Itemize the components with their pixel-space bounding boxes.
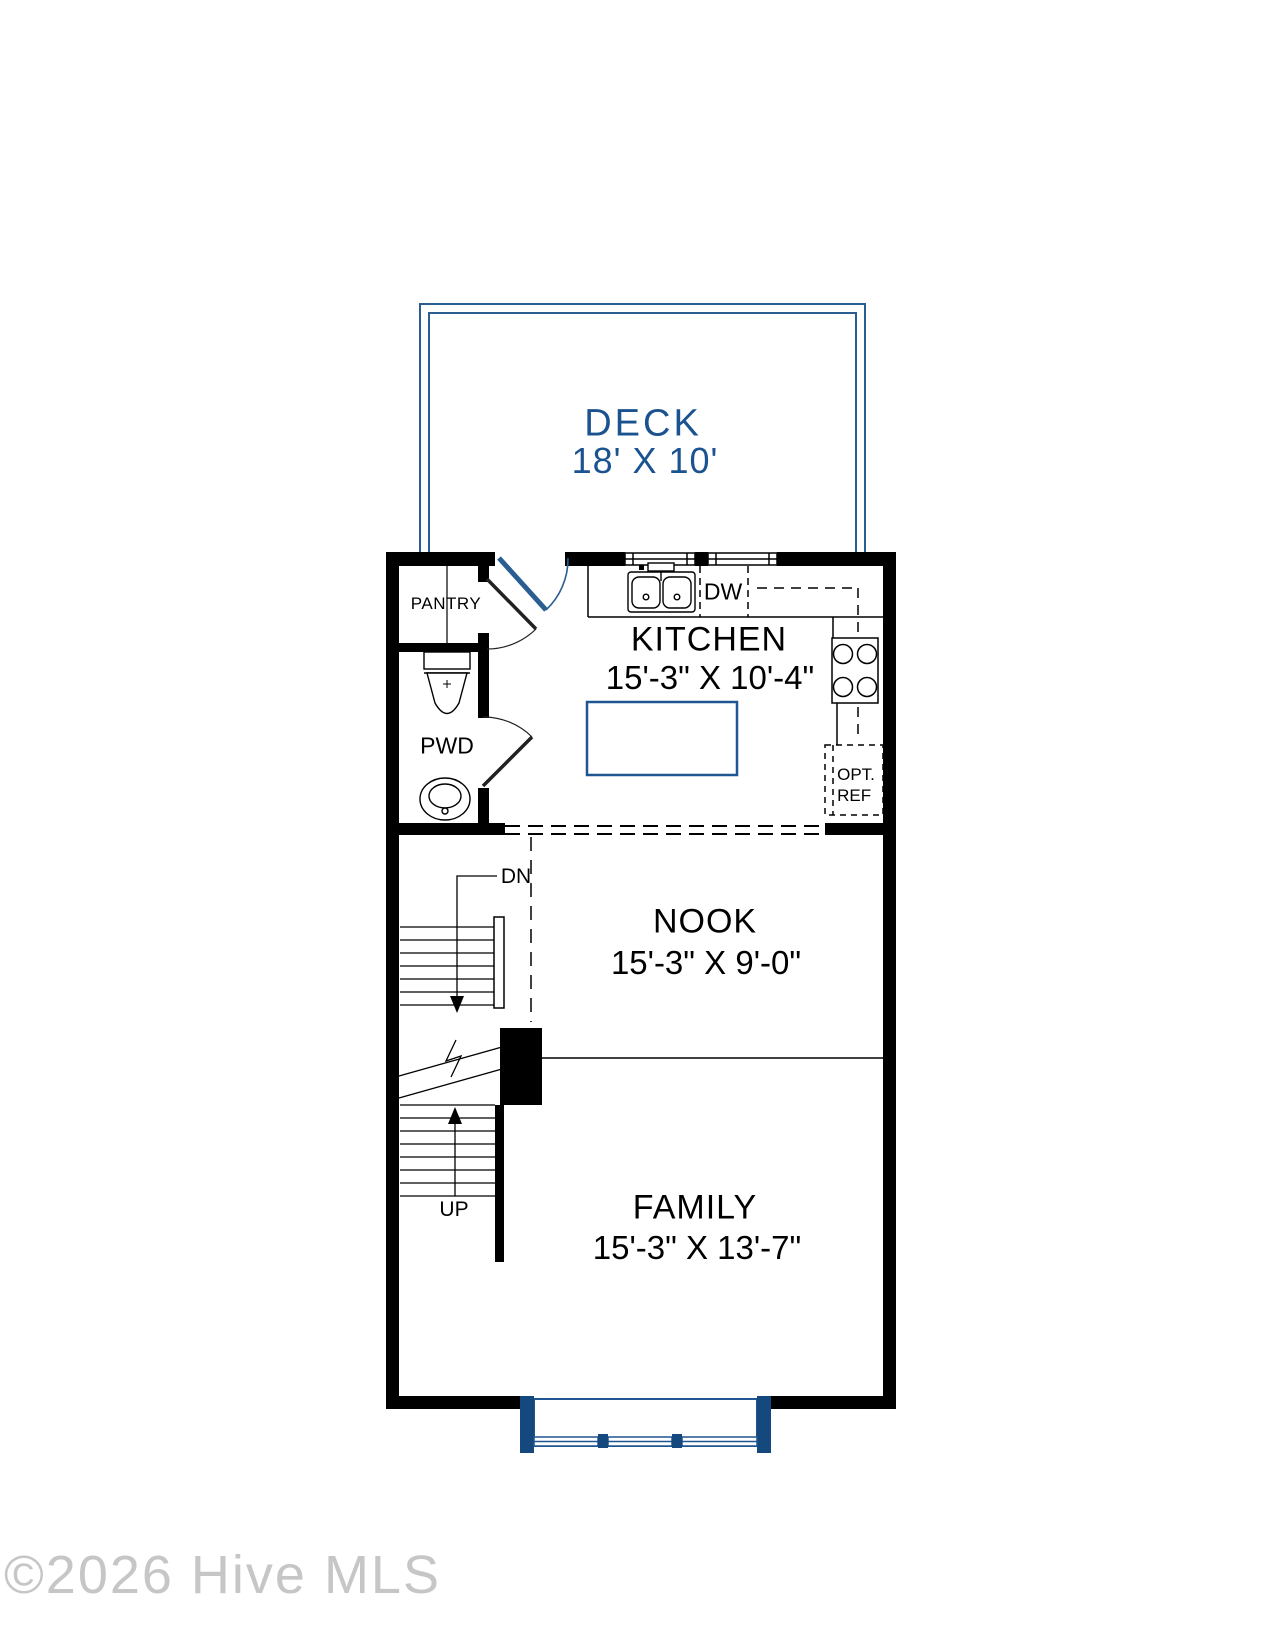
- toilet: [424, 652, 470, 714]
- dishwasher-label: DW: [704, 579, 742, 606]
- floorplan-canvas: DECK 18' X 10' PANTRY PWD KITCHEN 15'-3"…: [0, 0, 1275, 1650]
- floorplan-drawing: [0, 0, 1275, 1650]
- pantry-label: PANTRY: [411, 594, 481, 614]
- stairs-lower-run: [400, 1105, 495, 1196]
- range-stove: [832, 638, 878, 703]
- mls-watermark: ©2026 Hive MLS: [4, 1544, 441, 1606]
- stairs-up-label: UP: [439, 1198, 468, 1222]
- family-label: FAMILY: [633, 1189, 757, 1228]
- bay-window: [520, 1396, 771, 1453]
- stairs-down-label: DN: [501, 865, 531, 889]
- stair-break-line: [399, 1040, 502, 1098]
- pwd-label: PWD: [420, 733, 474, 760]
- family-dims: 15'-3" X 13'-7": [593, 1229, 801, 1267]
- nook-label: NOOK: [653, 903, 757, 942]
- kitchen-label: KITCHEN: [631, 621, 787, 660]
- stairs-upper-run: [400, 927, 495, 1005]
- opt-ref-line2: REF: [837, 785, 875, 806]
- kitchen-dims: 15'-3" X 10'-4": [606, 659, 814, 697]
- opt-ref-label: OPT. REF: [837, 764, 875, 806]
- kitchen-island: [587, 702, 737, 775]
- pwd-sink: [420, 778, 470, 820]
- pwd-door: [483, 717, 532, 786]
- opt-ref-line1: OPT.: [837, 764, 875, 785]
- nook-kitchen-boundary: [505, 826, 825, 834]
- kitchen-sink: [628, 563, 695, 612]
- deck-dims: 18' X 10': [572, 440, 719, 482]
- stair-handrail: [494, 917, 504, 1008]
- nook-dims: 15'-3" X 9'-0": [611, 944, 801, 982]
